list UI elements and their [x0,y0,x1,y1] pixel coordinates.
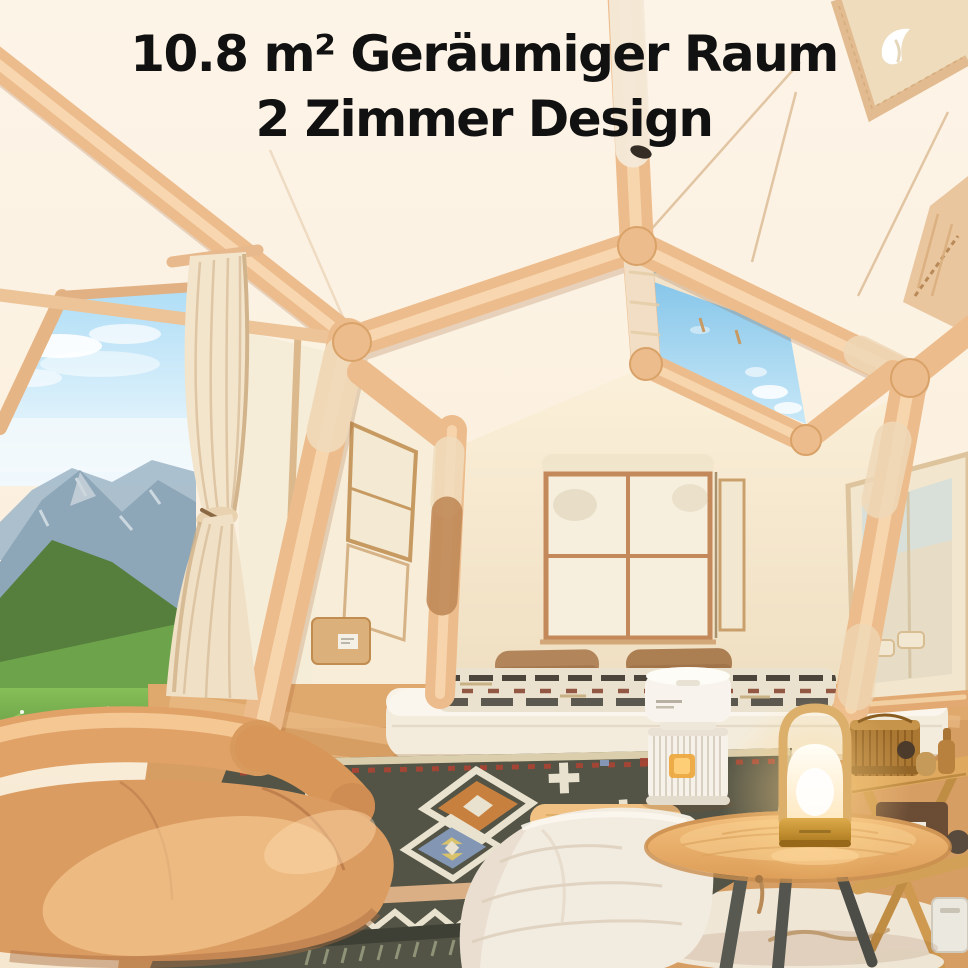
headline: 10.8 m² Geräumiger Raum 2 Zimmer Design [0,22,968,152]
table-leg [778,880,786,968]
product-image: 10.8 m² Geräumiger Raum 2 Zimmer Design [0,0,968,968]
headline-line2: 2 Zimmer Design [0,87,968,152]
camp-bin [932,898,968,952]
sofa-backrest [0,734,258,752]
headline-line1: 10.8 m² Geräumiger Raum [0,22,968,87]
gear-pocket [312,618,370,664]
wood-vase [938,740,955,774]
post-leather-wrap [442,512,447,600]
window-toggle [898,632,924,648]
side-window-pane [720,480,744,630]
lantern-lamp [719,696,911,888]
purifier-label [656,700,682,703]
clay-jar [916,752,936,776]
